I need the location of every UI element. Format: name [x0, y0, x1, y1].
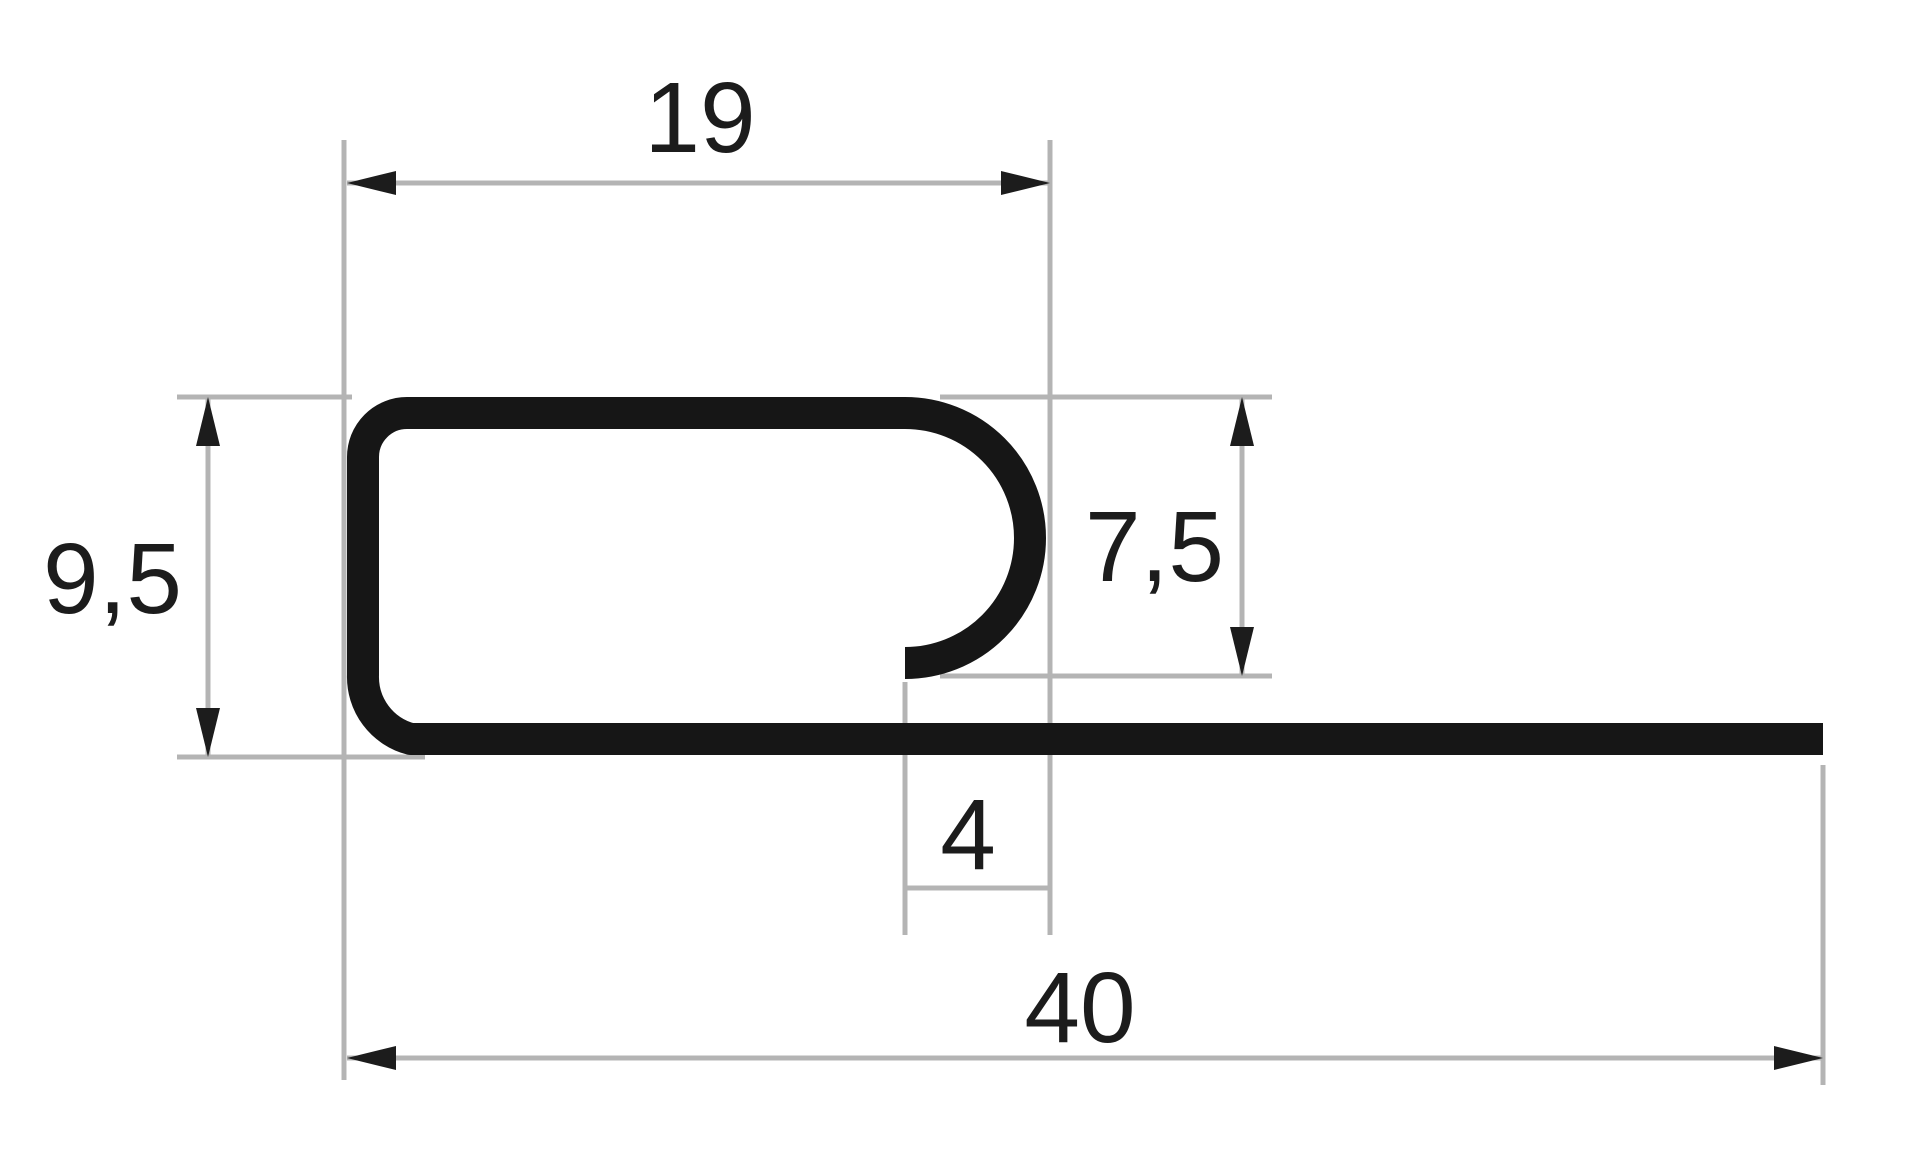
label-overall-width: 40	[1024, 952, 1135, 1064]
label-top-width: 19	[644, 62, 755, 174]
dimension-labels: 19 9,5 7,5 4 40	[43, 62, 1224, 1064]
arrow-overall-height-up	[196, 397, 220, 446]
arrow-top-width-left	[347, 171, 396, 195]
arrow-top-width-right	[1001, 171, 1050, 195]
arrow-lip-height-down	[1230, 627, 1254, 676]
profile-technical-drawing: 19 9,5 7,5 4 40	[0, 0, 1920, 1149]
label-slot-width: 4	[940, 779, 996, 891]
drawing-canvas: 19 9,5 7,5 4 40	[0, 0, 1920, 1149]
label-lip-height: 7,5	[1085, 491, 1224, 603]
arrow-overall-width-left	[347, 1046, 396, 1070]
arrow-overall-width-right	[1774, 1046, 1823, 1070]
arrow-lip-height-up	[1230, 397, 1254, 446]
arrow-overall-height-down	[196, 708, 220, 757]
label-overall-height: 9,5	[43, 523, 182, 635]
